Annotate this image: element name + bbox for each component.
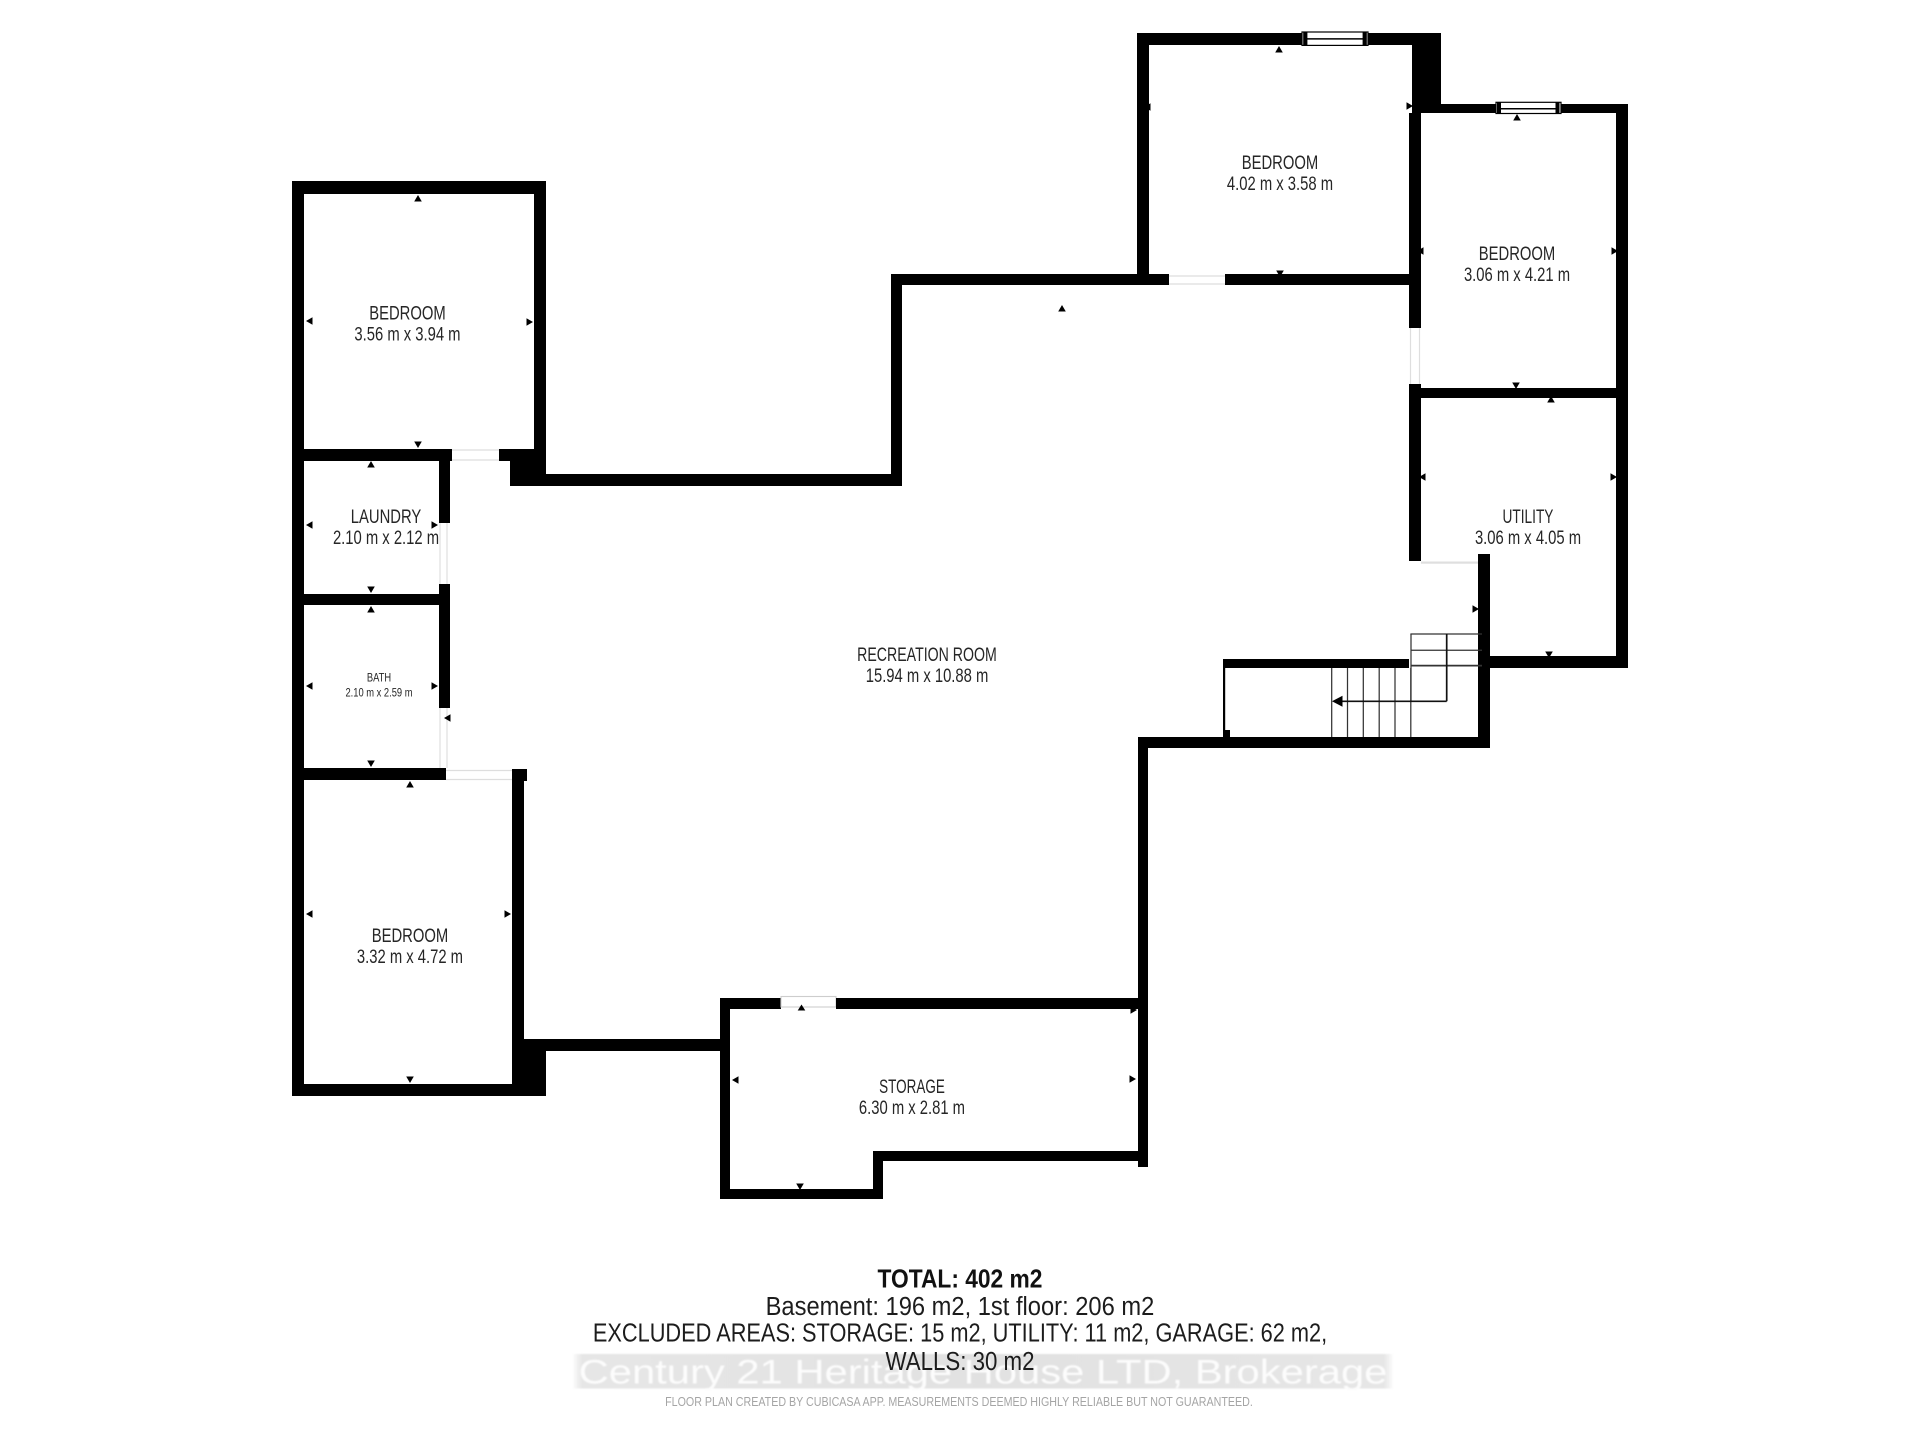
svg-text:BEDROOM: BEDROOM	[369, 303, 445, 324]
svg-text:BEDROOM: BEDROOM	[1479, 243, 1555, 264]
svg-text:UTILITY: UTILITY	[1503, 506, 1554, 528]
svg-text:BEDROOM: BEDROOM	[372, 925, 448, 946]
svg-text:3.32 m x 4.72 m: 3.32 m x 4.72 m	[357, 946, 463, 967]
svg-text:3.06 m x 4.05 m: 3.06 m x 4.05 m	[1475, 527, 1581, 548]
svg-text:15.94 m x 10.88 m: 15.94 m x 10.88 m	[866, 665, 989, 686]
svg-text:STORAGE: STORAGE	[879, 1077, 945, 1098]
svg-text:TOTAL: 402 m2: TOTAL: 402 m2	[878, 1265, 1043, 1294]
svg-text:BATH: BATH	[367, 671, 391, 684]
svg-text:EXCLUDED AREAS: STORAGE: 15 m2: EXCLUDED AREAS: STORAGE: 15 m2, UTILITY:…	[593, 1319, 1327, 1348]
svg-text:3.06 m x 4.21 m: 3.06 m x 4.21 m	[1464, 264, 1570, 285]
svg-text:LAUNDRY: LAUNDRY	[351, 506, 421, 527]
svg-text:RECREATION ROOM: RECREATION ROOM	[857, 644, 997, 666]
svg-text:BEDROOM: BEDROOM	[1242, 152, 1318, 173]
svg-text:FLOOR PLAN CREATED BY CUBICASA: FLOOR PLAN CREATED BY CUBICASA APP. MEAS…	[665, 1394, 1253, 1409]
svg-text:3.56 m x 3.94 m: 3.56 m x 3.94 m	[354, 324, 460, 345]
svg-text:2.10 m x 2.59 m: 2.10 m x 2.59 m	[345, 686, 412, 699]
svg-text:6.30 m x 2.81 m: 6.30 m x 2.81 m	[859, 1097, 965, 1118]
svg-text:2.10 m x 2.12 m: 2.10 m x 2.12 m	[333, 527, 439, 548]
svg-text:4.02 m x 3.58 m: 4.02 m x 3.58 m	[1227, 173, 1333, 194]
svg-text:WALLS: 30 m2: WALLS: 30 m2	[886, 1348, 1035, 1377]
svg-text:Basement: 196 m2, 1st floor: 2: Basement: 196 m2, 1st floor: 206 m2	[766, 1292, 1155, 1321]
